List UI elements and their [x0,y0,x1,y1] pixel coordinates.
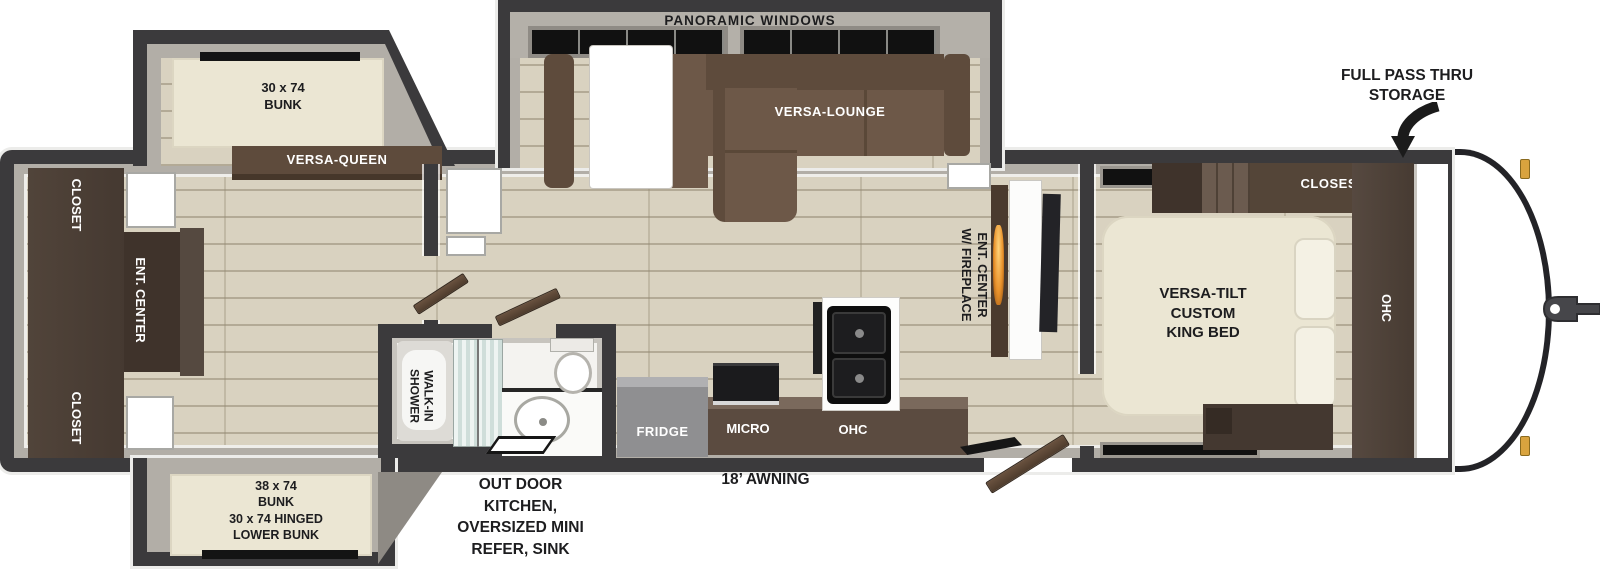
cabinet-hallway-lip [446,236,486,256]
bed-foot-box [1206,408,1232,434]
microwave [713,363,779,405]
king-bed-label-line2: CUSTOM [1108,304,1298,324]
versa-queen-label: VERSA-QUEEN [237,152,437,169]
sink-drain-bottom [855,374,864,383]
kitchen-sink [827,306,891,404]
rear-cabinet-column [180,228,204,376]
bathroom-door-opening [492,324,556,338]
outdoor-kitchen-line4: REFER, SINK [428,539,613,561]
rear-tv-bottom [126,396,174,450]
bunk-bottom-label-line1: 38 x 74 [186,478,366,494]
sink-basin-bottom [832,358,886,398]
bunk-bottom-label-line4: LOWER BUNK [186,527,366,543]
king-bed-label-line3: KING BED [1108,323,1298,343]
sofa-left-seat [672,54,708,188]
fridge [617,377,708,457]
bunk-bottom-label-line2: BUNK [186,494,366,510]
ent-center-label-line1: ENT. CENTER [974,232,990,317]
micro-label: MICRO [713,421,783,438]
bunkroom-ent-center-label: ENT. CENTER [132,245,148,355]
ent-center-panel [1009,180,1042,360]
pass-thru-label-line1: FULL PASS THRU [1322,66,1492,86]
rear-tv-top [126,172,176,228]
pass-thru-interior [1414,164,1448,458]
pillow-top [1294,238,1336,320]
outdoor-kitchen-line3: OVERSIZED MINI [428,517,613,539]
outdoor-kitchen-label: OUT DOOR KITCHEN, OVERSIZED MINI REFER, … [428,474,613,561]
ent-center-fireplace-label: ENT. CENTER W/ FIREPLACE [956,195,992,355]
bunk-top-label-line1: 30 x 74 [203,80,363,97]
outdoor-kitchen-line2: KITCHEN, [428,496,613,518]
shower-door-rod [477,339,479,447]
sink-drain-top [855,329,864,338]
sofa-right-arm [944,54,970,156]
sink-basin-top [832,312,886,354]
bunk-top-label: 30 x 74 BUNK [203,80,363,114]
bath-sink-drain [539,418,547,426]
bunk-rail-bottom [202,550,358,559]
bedroom-closet-shelves [1202,163,1250,213]
bunk-rail-top [200,52,360,61]
tv [1039,194,1061,332]
marker-light-bottom [1520,436,1530,456]
bunk-top-label-line2: BUNK [203,97,363,114]
floorplan-canvas: 30 x 74 BUNK PANORAMIC WINDOWS VERSA-LOU… [0,0,1600,587]
king-bed-label: VERSA-TILT CUSTOM KING BED [1108,284,1298,343]
awning-label: 18’ AWNING [698,470,833,490]
cabinet-hallway [446,168,502,234]
kitchen-ohc-label: OHC [818,422,888,439]
fridge-label: FRIDGE [617,424,708,441]
versa-lounge-label: VERSA-LOUNGE [745,104,915,121]
walk-in-shower-label-line1: WALK-IN [422,370,436,421]
pass-thru-arrow-icon [1388,102,1442,158]
hitch-coupler-icon [1542,285,1600,333]
walk-in-shower-label-line2: SHOWER [407,369,421,423]
lounge-table [590,46,672,188]
pillow-bottom [1294,326,1336,408]
wall-bedroom-top [1080,164,1094,374]
walk-in-shower-label: WALK-IN SHOWER [406,349,438,444]
cabinet-sofa-end [947,163,991,189]
outdoor-kitchen-line1: OUT DOOR [428,474,613,496]
bunkroom-closet-top-label: CLOSET [68,170,84,240]
kitchen-faucet [813,302,822,374]
king-bed-label-line1: VERSA-TILT [1108,284,1298,304]
bunk-bottom-label-line3: 30 x 74 HINGED [186,511,366,527]
marker-light-top [1520,159,1530,179]
fireplace-flame-icon [993,225,1004,305]
wall-bedroom-bottom [1080,446,1094,458]
sofa-back-row [706,54,944,90]
panoramic-windows-label: PANORAMIC WINDOWS [510,12,990,30]
bedroom-ohc-label: OHC [1378,278,1394,338]
pass-thru-storage-label: FULL PASS THRU STORAGE [1322,66,1492,106]
bunkroom-closet-bottom-label: CLOSET [68,383,84,453]
ent-center-label-line2: W/ FIREPLACE [958,228,974,321]
front-cap [1452,149,1552,472]
toilet-tank [550,338,594,352]
wall-bunkroom-top [424,164,438,256]
bunk-bottom-label: 38 x 74 BUNK 30 x 74 HINGED LOWER BUNK [186,478,366,543]
sofa-left-arm [544,54,574,188]
toilet-bowl [554,352,592,394]
bedroom-cabinet-left [1152,163,1202,213]
